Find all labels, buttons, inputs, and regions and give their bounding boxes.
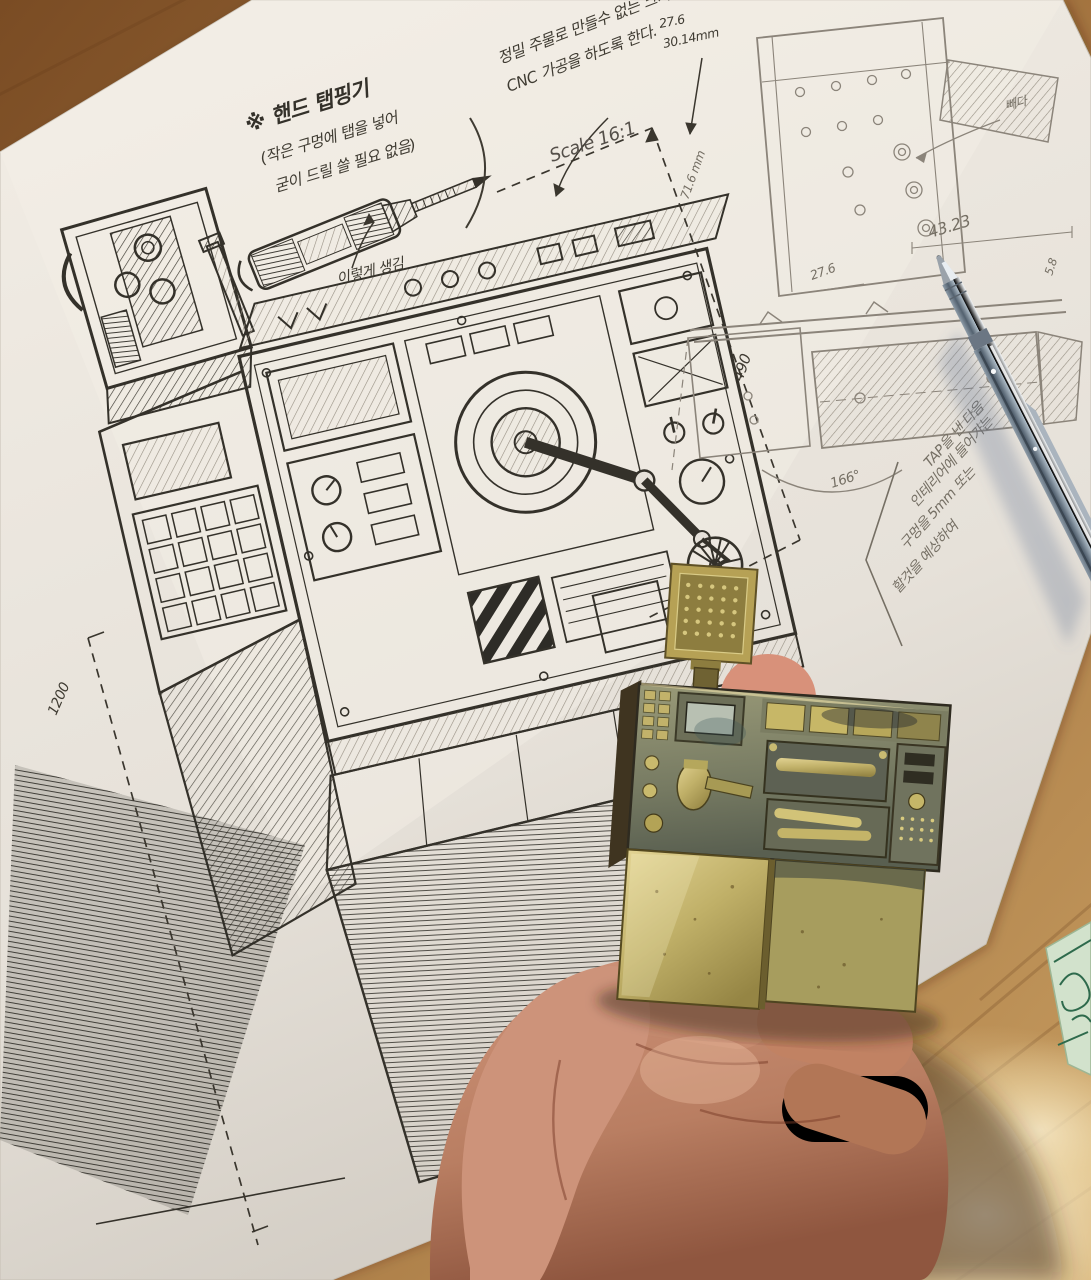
knuckle-highlight: [640, 1036, 760, 1104]
scene-canvas: ※ 핸드 탭핑기 (작은 구멍에 탭을 넣어 굳이 드릴 쓸 필요 없음) 정밀…: [0, 0, 1091, 1280]
photo-desk-scene: ※ 핸드 탭핑기 (작은 구멍에 탭을 넣어 굳이 드릴 쓸 필요 없음) 정밀…: [0, 0, 1091, 1280]
